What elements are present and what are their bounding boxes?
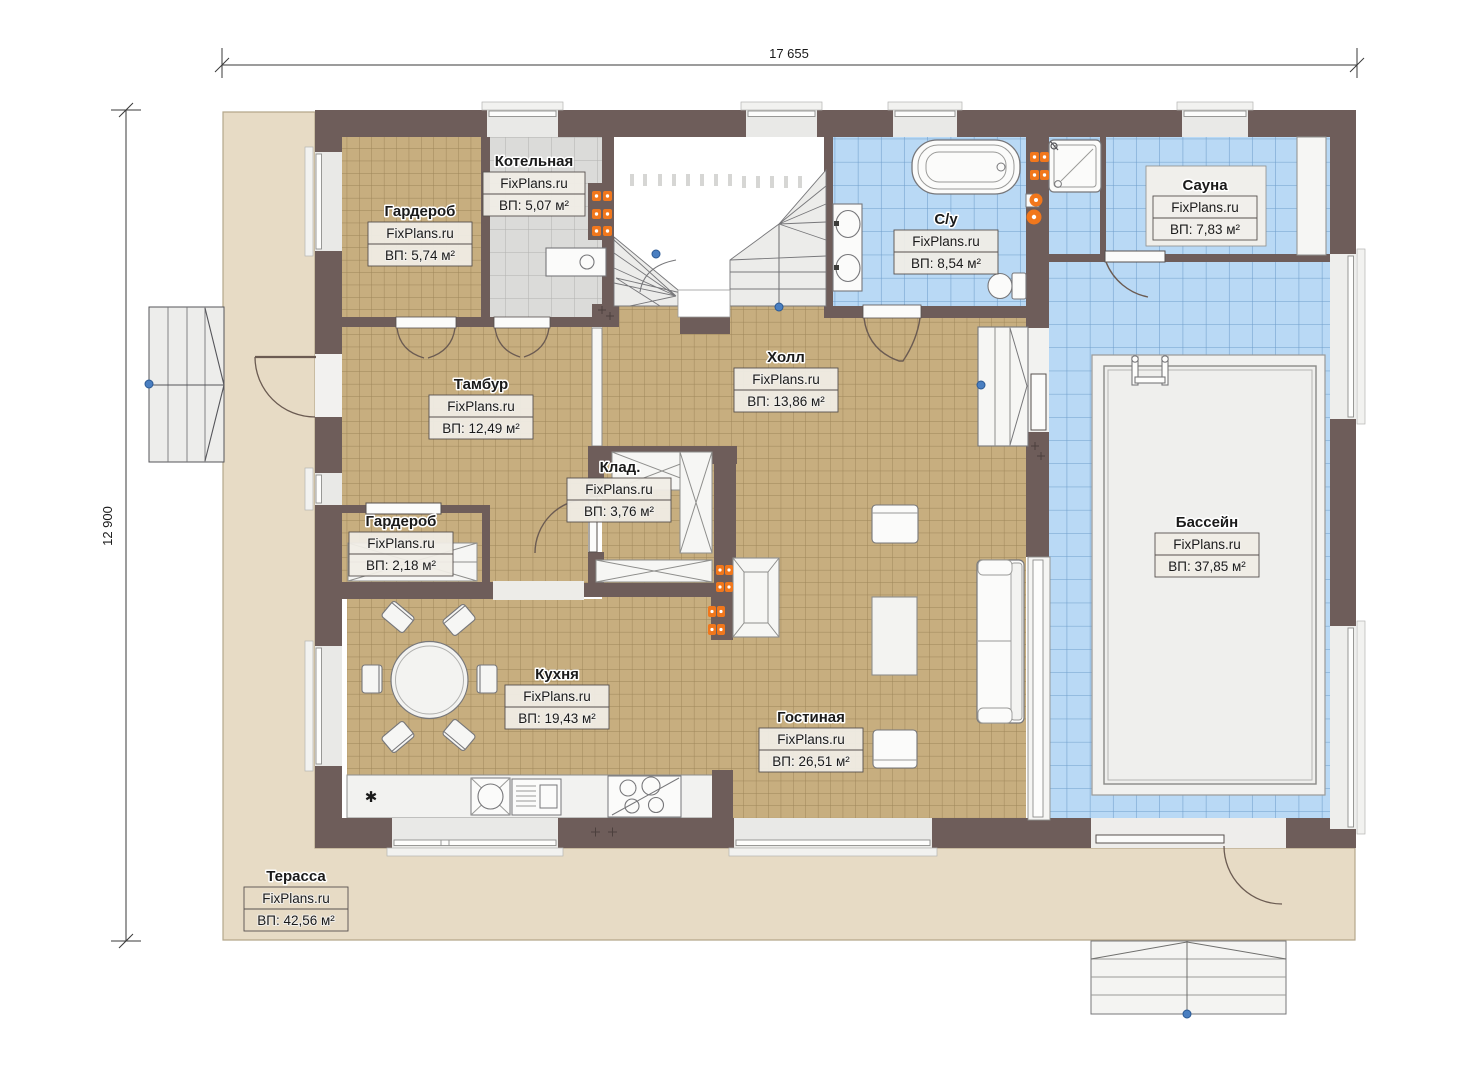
svg-text:ВП: 42,56 м²: ВП: 42,56 м²: [257, 913, 335, 928]
svg-text:Бассейн: Бассейн: [1176, 514, 1238, 531]
svg-text:FixPlans.ru: FixPlans.ru: [1171, 200, 1239, 215]
svg-text:FixPlans.ru: FixPlans.ru: [447, 399, 515, 414]
svg-text:FixPlans.ru: FixPlans.ru: [367, 536, 435, 551]
svg-text:Клад.: Клад.: [600, 459, 641, 476]
svg-text:FixPlans.ru: FixPlans.ru: [500, 176, 568, 191]
svg-text:FixPlans.ru: FixPlans.ru: [262, 891, 330, 906]
svg-text:Холл: Холл: [767, 349, 805, 366]
svg-text:ВП: 19,43 м²: ВП: 19,43 м²: [518, 711, 596, 726]
svg-text:FixPlans.ru: FixPlans.ru: [386, 226, 454, 241]
svg-text:ВП: 8,54 м²: ВП: 8,54 м²: [911, 256, 982, 271]
svg-text:ВП: 7,83 м²: ВП: 7,83 м²: [1170, 222, 1241, 237]
svg-text:Гардероб: Гардероб: [366, 513, 437, 530]
svg-text:Котельная: Котельная: [495, 153, 574, 170]
svg-text:ВП: 26,51 м²: ВП: 26,51 м²: [772, 754, 850, 769]
svg-text:FixPlans.ru: FixPlans.ru: [585, 482, 653, 497]
svg-text:Кухня: Кухня: [535, 666, 579, 683]
svg-text:FixPlans.ru: FixPlans.ru: [912, 234, 980, 249]
svg-text:Тамбур: Тамбур: [454, 376, 508, 393]
svg-text:17 655: 17 655: [769, 46, 809, 61]
svg-text:ВП: 37,85 м²: ВП: 37,85 м²: [1168, 559, 1246, 574]
svg-text:Сауна: Сауна: [1182, 177, 1228, 194]
svg-text:ВП: 13,86 м²: ВП: 13,86 м²: [747, 394, 825, 409]
svg-text:Гостиная: Гостиная: [777, 709, 845, 726]
svg-text:FixPlans.ru: FixPlans.ru: [523, 689, 591, 704]
svg-text:ВП: 3,76 м²: ВП: 3,76 м²: [584, 504, 655, 519]
svg-text:FixPlans.ru: FixPlans.ru: [777, 732, 845, 747]
svg-text:ВП: 5,07 м²: ВП: 5,07 м²: [499, 198, 570, 213]
svg-text:Гардероб: Гардероб: [385, 203, 456, 220]
svg-text:FixPlans.ru: FixPlans.ru: [752, 372, 820, 387]
svg-text:Терасса: Терасса: [266, 868, 326, 885]
svg-text:✱: ✱: [365, 789, 378, 806]
svg-text:С/у: С/у: [934, 211, 958, 228]
svg-text:ВП: 5,74 м²: ВП: 5,74 м²: [385, 248, 456, 263]
svg-text:FixPlans.ru: FixPlans.ru: [1173, 537, 1241, 552]
svg-text:ВП: 12,49 м²: ВП: 12,49 м²: [442, 421, 520, 436]
svg-text:ВП: 2,18 м²: ВП: 2,18 м²: [366, 558, 437, 573]
svg-text:12 900: 12 900: [100, 506, 115, 546]
